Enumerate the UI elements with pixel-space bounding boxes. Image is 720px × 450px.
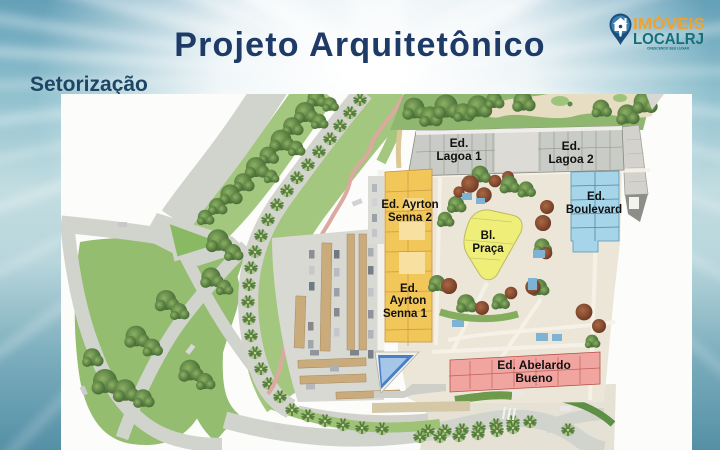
svg-text:Senna 2: Senna 2 — [388, 212, 432, 224]
svg-text:Boulevard: Boulevard — [566, 204, 622, 216]
svg-text:Ed.: Ed. — [562, 139, 581, 153]
svg-text:LOCALRJ: LOCALRJ — [633, 31, 704, 48]
svg-text:Lagoa 1: Lagoa 1 — [436, 149, 482, 163]
svg-text:Ed. Ayrton: Ed. Ayrton — [381, 199, 438, 211]
svg-text:CRESCENDO SEU LUGAR: CRESCENDO SEU LUGAR — [647, 47, 689, 51]
svg-text:Ayrton: Ayrton — [390, 295, 427, 307]
svg-text:Projeto Arquitetônico: Projeto Arquitetônico — [174, 26, 546, 64]
svg-text:Bl.: Bl. — [481, 230, 496, 242]
svg-text:Lagoa 2: Lagoa 2 — [548, 152, 594, 166]
svg-text:Bueno: Bueno — [515, 371, 552, 385]
svg-text:Setorização: Setorização — [30, 73, 148, 96]
svg-text:Praça: Praça — [472, 243, 504, 255]
svg-text:Senna 1: Senna 1 — [383, 308, 428, 320]
svg-text:Ed. Abelardo: Ed. Abelardo — [497, 358, 571, 372]
svg-text:Ed.: Ed. — [587, 191, 605, 203]
svg-text:Ed.: Ed. — [450, 136, 469, 150]
svg-text:Ed.: Ed. — [400, 283, 418, 295]
